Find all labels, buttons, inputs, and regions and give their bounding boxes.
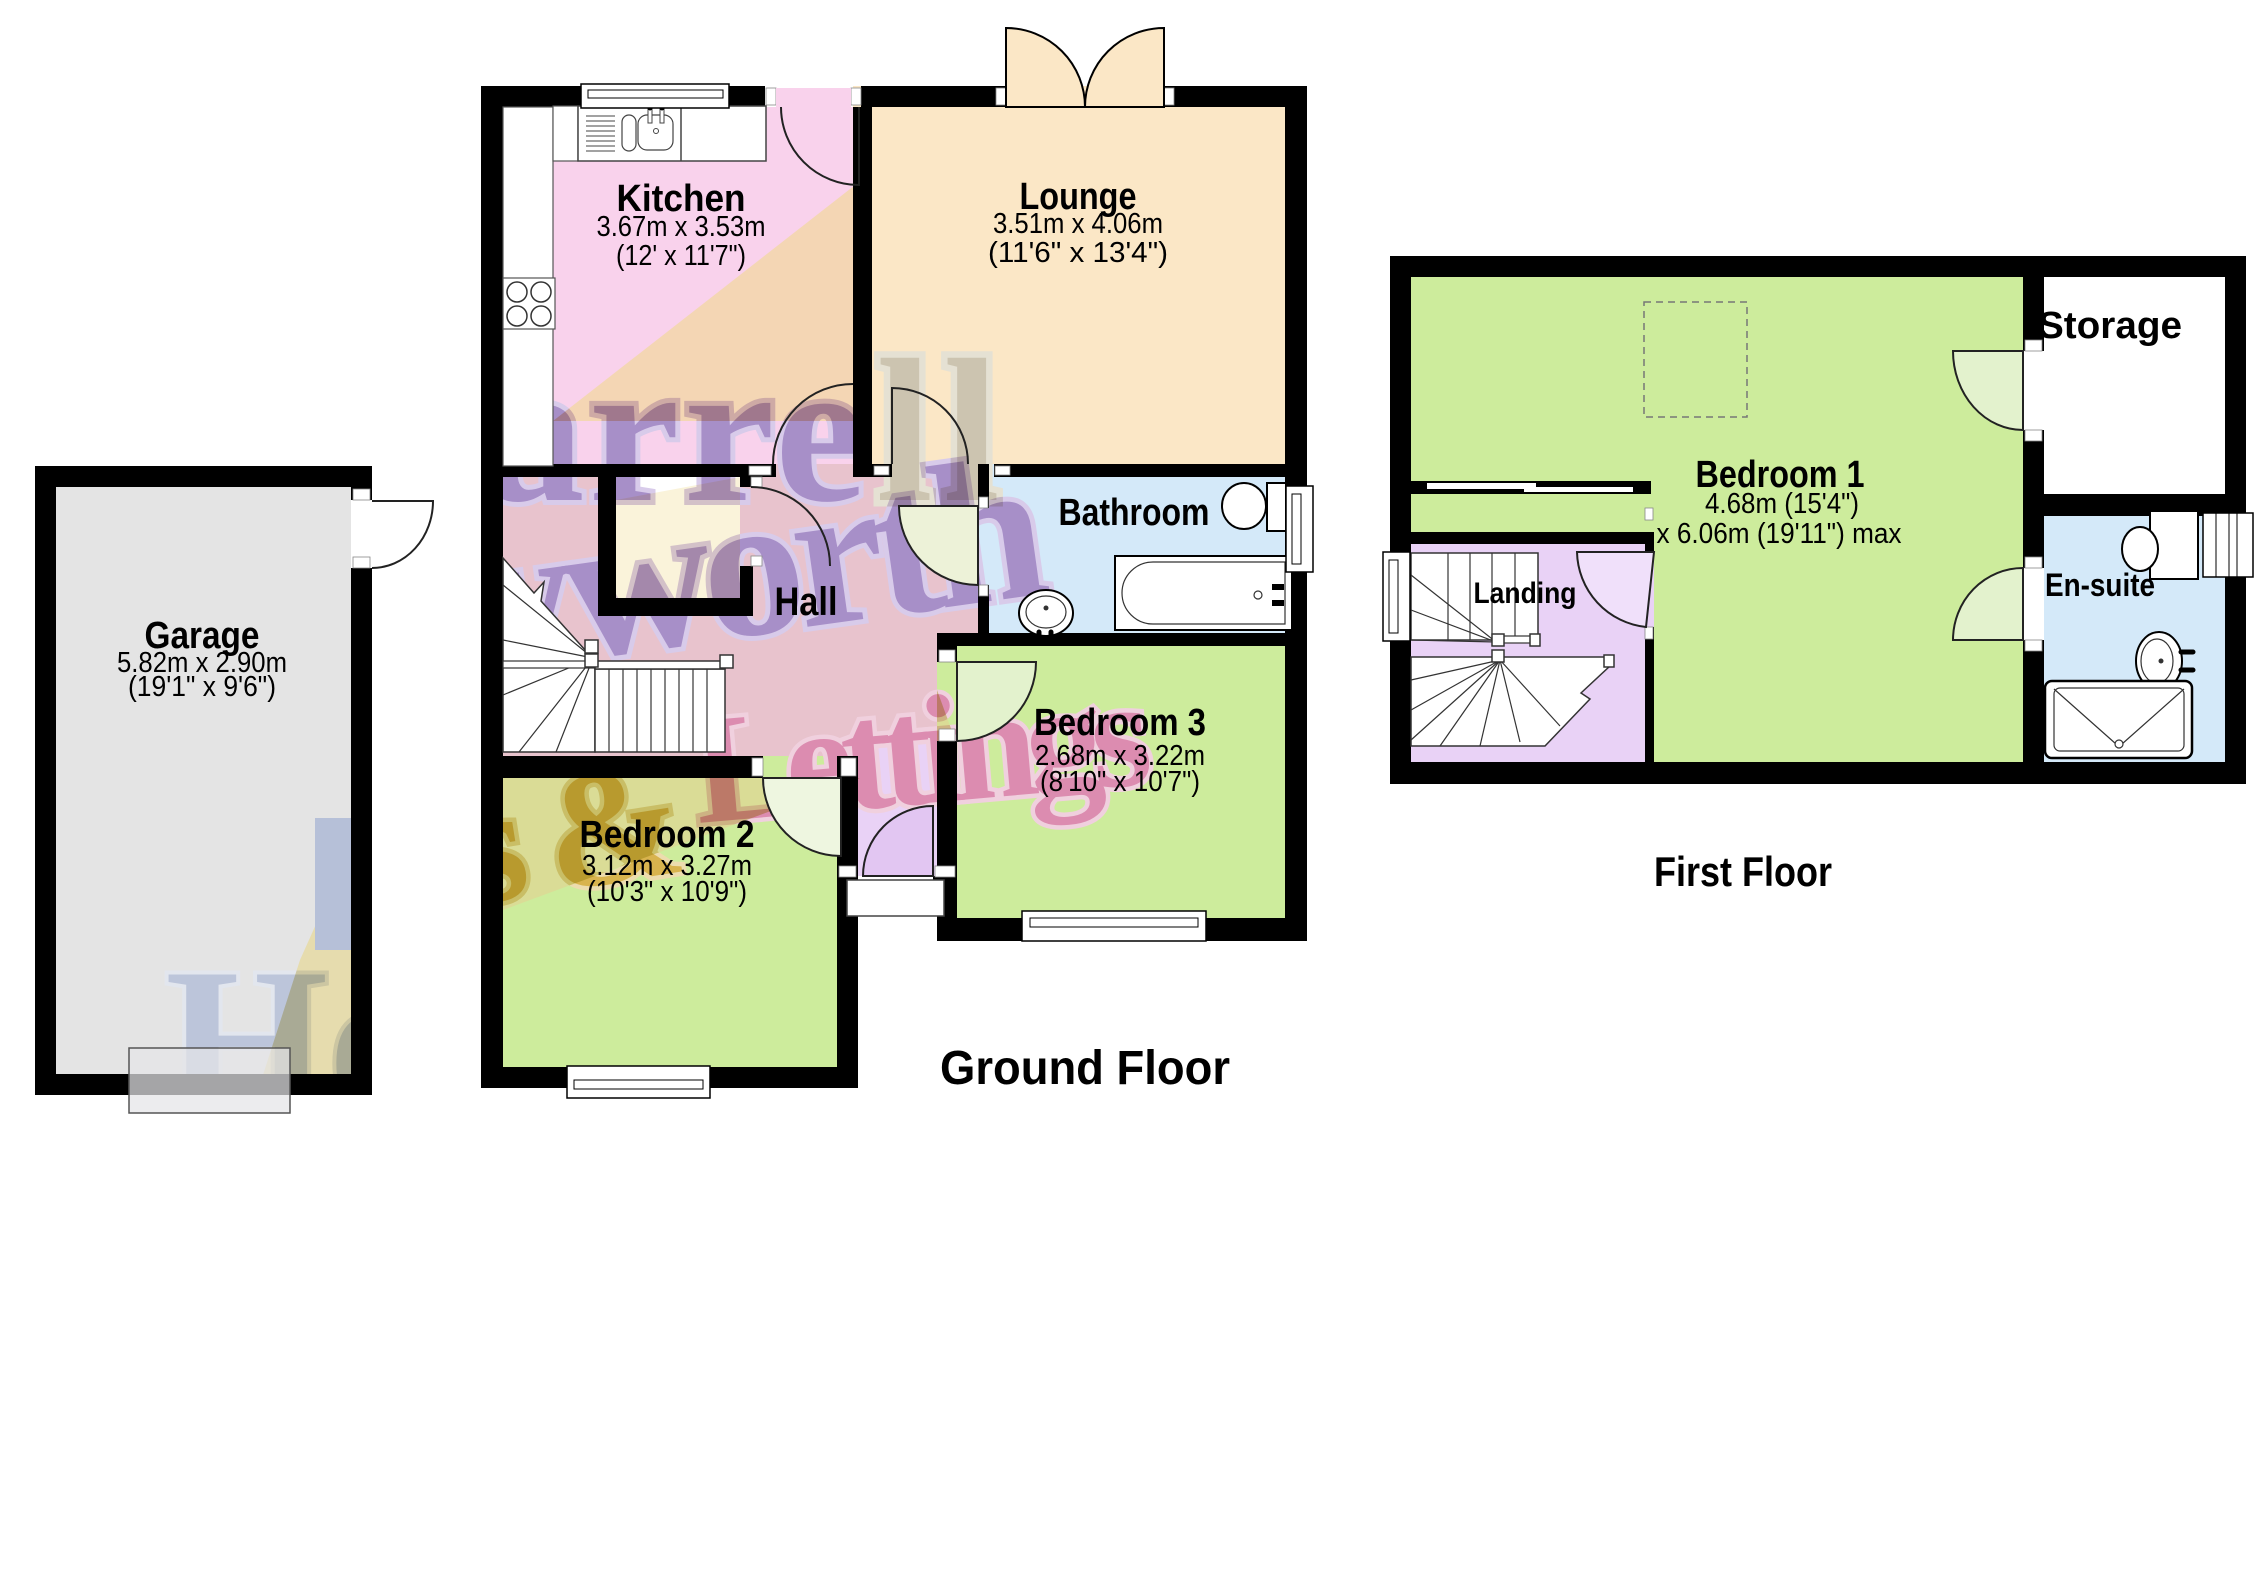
svg-text:Bathroom: Bathroom	[1059, 492, 1210, 534]
svg-text:(19'1" x 9'6"): (19'1" x 9'6")	[128, 671, 276, 703]
svg-text:4.68m (15'4"): 4.68m (15'4")	[1705, 488, 1859, 520]
svg-text:Hall: Hall	[775, 580, 838, 624]
svg-text:(12' x 11'7"): (12' x 11'7")	[616, 240, 746, 272]
svg-text:3.67m x 3.53m: 3.67m x 3.53m	[597, 211, 766, 243]
svg-text:(10'3" x 10'9"): (10'3" x 10'9")	[587, 876, 747, 908]
svg-text:First Floor: First Floor	[1654, 848, 1832, 895]
svg-text:Ground Floor: Ground Floor	[940, 1042, 1230, 1095]
svg-text:(11'6" x 13'4"): (11'6" x 13'4")	[988, 237, 1168, 269]
svg-text:3.51m x 4.06m: 3.51m x 4.06m	[993, 208, 1163, 240]
svg-text:Landing: Landing	[1474, 577, 1577, 610]
svg-text:(8'10" x 10'7"): (8'10" x 10'7")	[1040, 766, 1200, 798]
svg-text:x 6.06m (19'11") max: x 6.06m (19'11") max	[1657, 518, 1902, 550]
svg-text:En-suite: En-suite	[2045, 567, 2155, 603]
svg-text:Bedroom 3: Bedroom 3	[1034, 702, 1206, 744]
svg-text:Storage: Storage	[2038, 305, 2182, 347]
